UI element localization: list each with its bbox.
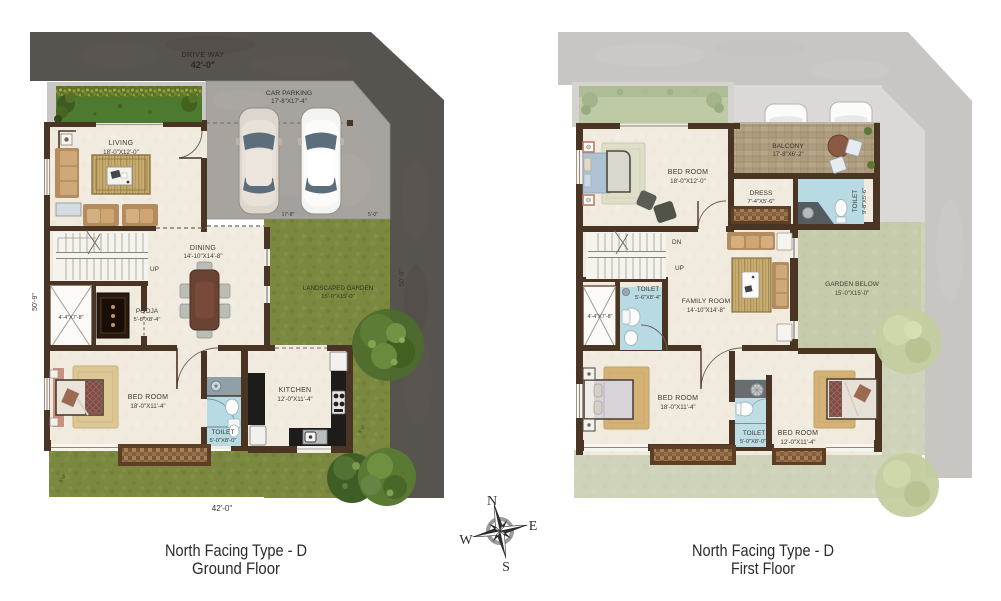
svg-text:TOILET: TOILET [212, 429, 235, 436]
svg-text:UP: UP [675, 265, 684, 272]
svg-text:12'-0"X11'-4": 12'-0"X11'-4" [780, 439, 815, 446]
svg-text:TOILET: TOILET [637, 286, 659, 293]
svg-text:LANDSCAPED GARDEN: LANDSCAPED GARDEN [303, 285, 373, 292]
svg-text:KITCHEN: KITCHEN [279, 387, 312, 394]
svg-text:14'-10"X14'-8": 14'-10"X14'-8" [687, 308, 725, 314]
svg-text:N: N [487, 494, 497, 509]
svg-text:18'-0"X12'-0": 18'-0"X12'-0" [670, 178, 706, 185]
svg-text:BED ROOM: BED ROOM [778, 430, 819, 437]
svg-text:BALCONY: BALCONY [772, 143, 804, 150]
svg-text:17'-8": 17'-8" [282, 212, 295, 218]
svg-text:4'-4"X7'-8": 4'-4"X7'-8" [587, 314, 612, 320]
svg-text:5'-8"X8'-4": 5'-8"X8'-4" [134, 317, 161, 323]
svg-text:E: E [529, 519, 538, 534]
svg-text:15'-0"X15'-0": 15'-0"X15'-0" [835, 291, 870, 297]
svg-text:50'-9": 50'-9" [32, 293, 39, 311]
svg-text:CAR PARKING: CAR PARKING [266, 90, 312, 97]
svg-text:Ground Floor: Ground Floor [192, 559, 280, 578]
svg-text:17'-8"X6'-2": 17'-8"X6'-2" [772, 152, 803, 158]
svg-text:North Facing Type - D: North Facing Type - D [165, 541, 307, 560]
svg-text:DN: DN [672, 239, 682, 246]
svg-text:18'-0"X11'-4": 18'-0"X11'-4" [660, 404, 695, 411]
svg-text:5'-0": 5'-0" [368, 212, 378, 218]
svg-text:15'-0"X15'-0": 15'-0"X15'-0" [321, 294, 354, 300]
svg-text:DRIVE WAY: DRIVE WAY [181, 50, 224, 59]
svg-text:North Facing Type - D: North Facing Type - D [692, 541, 834, 560]
svg-text:18'-0"X11'-4": 18'-0"X11'-4" [130, 403, 165, 410]
svg-text:5'-6"X8'-4": 5'-6"X8'-4" [635, 295, 661, 301]
svg-text:TOILET: TOILET [852, 190, 859, 212]
svg-text:LIVING: LIVING [109, 140, 134, 147]
svg-text:DRESS: DRESS [750, 190, 773, 197]
svg-text:42'-0": 42'-0" [191, 60, 215, 70]
svg-text:12'-0"X11'-4": 12'-0"X11'-4" [277, 396, 312, 403]
svg-text:5'-0"X8'-0": 5'-0"X8'-0" [210, 438, 237, 444]
svg-text:7'-4"X5'-6": 7'-4"X5'-6" [748, 199, 775, 205]
svg-text:42'-0": 42'-0" [212, 504, 233, 513]
svg-text:18'-0"X12'-0": 18'-0"X12'-0" [103, 149, 139, 156]
svg-text:5'-0"X8'-0": 5'-0"X8'-0" [740, 439, 766, 445]
svg-text:First Floor: First Floor [731, 559, 795, 578]
svg-text:BED ROOM: BED ROOM [668, 169, 709, 176]
svg-text:W: W [459, 533, 473, 548]
svg-text:FAMILY ROOM: FAMILY ROOM [682, 298, 731, 305]
svg-text:BED ROOM: BED ROOM [128, 394, 169, 401]
svg-text:50'-9": 50'-9" [399, 269, 406, 287]
svg-text:UP: UP [150, 266, 159, 273]
svg-text:17'-8"X17'-4": 17'-8"X17'-4" [271, 98, 307, 105]
svg-text:BED ROOM: BED ROOM [658, 395, 699, 402]
svg-text:POOJA: POOJA [136, 308, 159, 315]
svg-text:14'-10"X14'-8": 14'-10"X14'-8" [183, 253, 222, 260]
svg-text:GARDEN BELOW: GARDEN BELOW [825, 281, 880, 288]
svg-text:4'-4"X7'-8": 4'-4"X7'-8" [58, 315, 83, 321]
svg-text:S: S [502, 560, 510, 575]
svg-text:9'-8"X5'-6": 9'-8"X5'-6" [862, 188, 868, 214]
svg-text:TOILET: TOILET [743, 430, 765, 437]
svg-text:DINING: DINING [190, 245, 216, 252]
